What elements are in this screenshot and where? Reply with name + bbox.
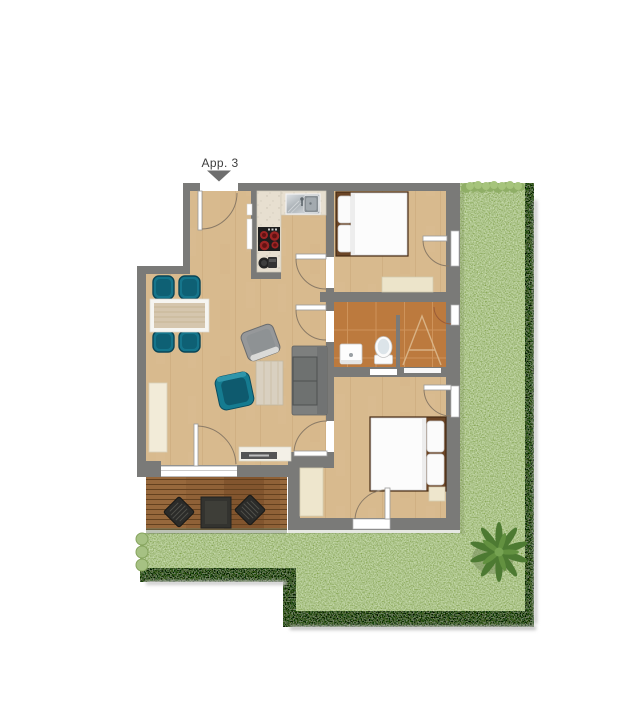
- svg-text:App. 3: App. 3: [201, 156, 238, 170]
